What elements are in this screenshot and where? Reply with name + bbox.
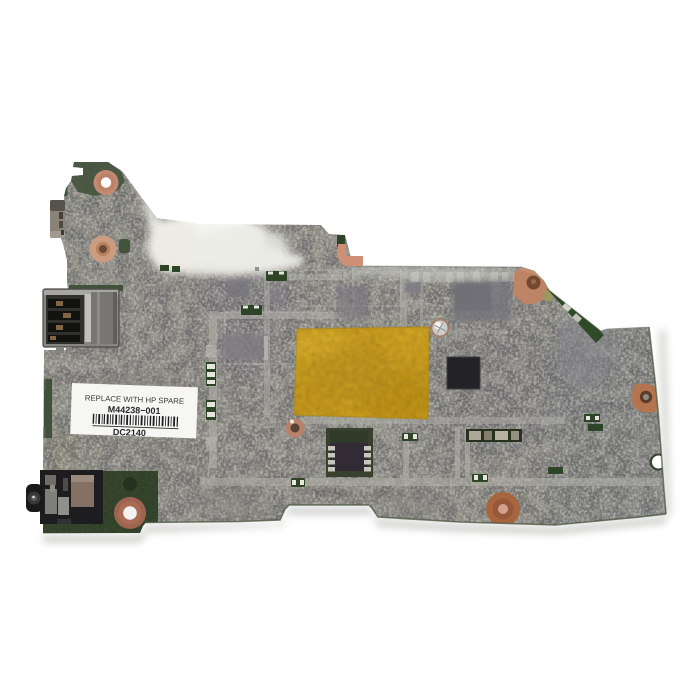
svg-text:MODEL-UGM: MODEL-UGM xyxy=(316,488,408,500)
svg-text:DC2140: DC2140 xyxy=(113,427,146,438)
svg-text:M44238−001: M44238−001 xyxy=(108,404,161,416)
